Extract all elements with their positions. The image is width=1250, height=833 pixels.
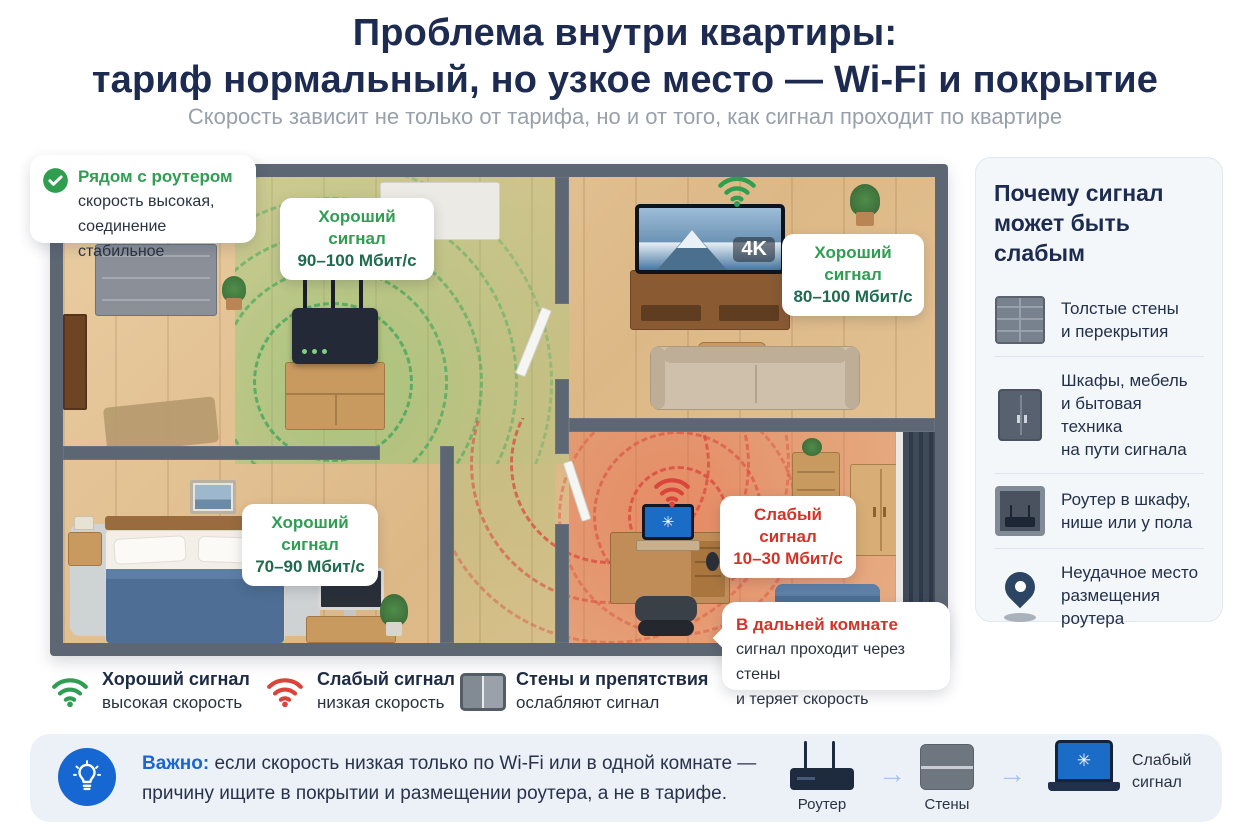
sidebar-item-text: Неудачное место размещения роутера xyxy=(1061,561,1204,630)
laptop-weak-icon: ✳ xyxy=(1048,740,1120,796)
laptop-base xyxy=(636,540,700,551)
legend-walls: Стены и препятствия ослабляют сигнал xyxy=(460,668,708,714)
wall-partition xyxy=(63,446,380,460)
footer-line-2: причину ищите в покрытии и размещении ро… xyxy=(142,779,756,809)
tv: 4K xyxy=(635,204,785,274)
location-pin-icon xyxy=(994,568,1046,624)
living-plant-pot xyxy=(856,212,874,226)
laptop: ✳ xyxy=(642,504,694,540)
page-subtitle: Скорость зависит не только от тарифа, но… xyxy=(0,104,1250,130)
footer-note-text: Важно: если скорость низкая только по Wi… xyxy=(142,749,756,809)
callout-far-room: В дальней комнате сигнал проходит через … xyxy=(722,602,950,690)
loading-spinner-icon: ✳ xyxy=(662,513,675,531)
office-chair-seat xyxy=(635,596,697,622)
sidebar-item-text: Шкафы, мебель и бытовая техника на пути … xyxy=(1061,369,1204,461)
legend-weak-signal: Слабый сигнал низкая скорость xyxy=(265,668,455,714)
wall-icon xyxy=(460,673,506,711)
sidebar-item-walls: Толстые стены и перекрытия xyxy=(994,284,1204,356)
callout-near-router: Рядом с роутером скорость высокая, соеди… xyxy=(30,155,256,243)
signal-label-value: 80–100 Мбит/с xyxy=(792,286,914,308)
signal-label-tv: Хороший сигнал 80–100 Мбит/с xyxy=(782,234,924,316)
callout-body: скорость высокая, соединение стабильное xyxy=(78,189,256,264)
legend-title: Хороший сигнал xyxy=(102,668,250,691)
wall-partition xyxy=(440,446,454,643)
far-shelf-plant xyxy=(802,438,822,456)
signal-label-value: 10–30 Мбит/с xyxy=(730,548,846,570)
wifi-bad-icon xyxy=(265,674,305,708)
sidebar-item-furniture: Шкафы, мебель и бытовая техника на пути … xyxy=(994,357,1204,473)
arrow-icon: → xyxy=(998,758,1026,790)
flow-label-weak-signal: Слабый сигнал xyxy=(1132,750,1212,794)
sidebar-item-text: Толстые стены и перекрытия xyxy=(1061,297,1179,343)
brick-wall-icon xyxy=(994,296,1046,344)
signal-label-value: 90–100 Мбит/с xyxy=(290,250,424,272)
legend-subtitle: ослабляют сигнал xyxy=(516,691,708,714)
office-chair-back xyxy=(638,620,694,636)
window-frame xyxy=(896,432,903,622)
legend-title: Стены и препятствия xyxy=(516,668,708,691)
signal-label-title: Хороший сигнал xyxy=(792,242,914,286)
wifi-good-icon xyxy=(50,674,90,708)
lightbulb-icon xyxy=(58,748,116,806)
callout-body: сигнал проходит через стены и теряет ско… xyxy=(736,637,936,712)
signal-label-title: Слабый сигнал xyxy=(730,504,846,548)
check-circle-icon xyxy=(42,167,69,194)
sofa xyxy=(650,346,860,410)
loading-spinner-icon: ✳ xyxy=(1077,751,1091,771)
flow-label-walls: Стены xyxy=(909,796,985,813)
signal-label-bedroom: Хороший сигнал 70–90 Мбит/с xyxy=(242,504,378,586)
callout-title: В дальней комнате xyxy=(736,612,936,637)
wifi-good-icon xyxy=(716,172,758,208)
wifi-bad-icon xyxy=(652,474,692,508)
tv-4k-badge: 4K xyxy=(733,237,775,262)
signal-label-hall: Хороший сигнал 90–100 Мбит/с xyxy=(280,198,434,280)
important-label: Важно: xyxy=(142,753,209,774)
entry-door xyxy=(63,314,87,410)
sidebar-item-bad-location: Неудачное место размещения роутера xyxy=(994,549,1204,642)
bedside-lamp xyxy=(74,516,94,530)
flow-label-router: Роутер xyxy=(782,796,862,813)
wall-picture xyxy=(190,480,236,514)
legend-good-signal: Хороший сигнал высокая скорость xyxy=(50,668,250,714)
tv-stand xyxy=(630,270,790,330)
nightstand xyxy=(68,532,102,566)
cabinet-icon xyxy=(994,389,1046,441)
sidebar-item-router-placement: Роутер в шкафу, нише или у пола xyxy=(994,474,1204,548)
router-icon xyxy=(790,768,854,790)
wall-partition xyxy=(555,177,569,304)
hallway-plant-pot xyxy=(226,298,242,310)
wall-partition xyxy=(569,418,935,432)
footer-line-1: если скорость низкая только по Wi-Fi или… xyxy=(214,753,756,774)
computer-mouse xyxy=(706,552,719,571)
wall-partition xyxy=(555,379,569,454)
router-cabinet xyxy=(285,362,385,430)
signal-label-far-room: Слабый сигнал 10–30 Мбит/с xyxy=(720,496,856,578)
sidebar-title: Почему сигнал может быть слабым xyxy=(994,178,1204,268)
window-curtain xyxy=(903,432,935,622)
bedroom-plant-pot xyxy=(386,622,402,636)
wall-partition xyxy=(555,524,569,643)
legend-title: Слабый сигнал xyxy=(317,668,455,691)
callout-title: Рядом с роутером xyxy=(78,164,233,189)
legend-subtitle: высокая скорость xyxy=(102,691,250,714)
infographic-canvas: Проблема внутри квартиры: тариф нормальн… xyxy=(0,0,1250,833)
sidebar-why-weak: Почему сигнал может быть слабым Толстые … xyxy=(975,157,1223,622)
signal-label-title: Хороший сигнал xyxy=(252,512,368,556)
wifi-router xyxy=(292,308,378,364)
sidebar-item-text: Роутер в шкафу, нише или у пола xyxy=(1061,488,1192,534)
wall-icon xyxy=(920,744,974,790)
router-in-niche-icon xyxy=(994,486,1046,536)
legend-subtitle: низкая скорость xyxy=(317,691,455,714)
footer-note-bar: Важно: если скорость низкая только по Wi… xyxy=(30,734,1222,822)
page-title: Проблема внутри квартиры: тариф нормальн… xyxy=(0,10,1250,104)
signal-label-title: Хороший сигнал xyxy=(290,206,424,250)
arrow-icon: → xyxy=(878,758,906,790)
title-line-2: тариф нормальный, но узкое место — Wi-Fi… xyxy=(0,57,1250,104)
title-line-1: Проблема внутри квартиры: xyxy=(0,10,1250,57)
signal-label-value: 70–90 Мбит/с xyxy=(252,556,368,578)
